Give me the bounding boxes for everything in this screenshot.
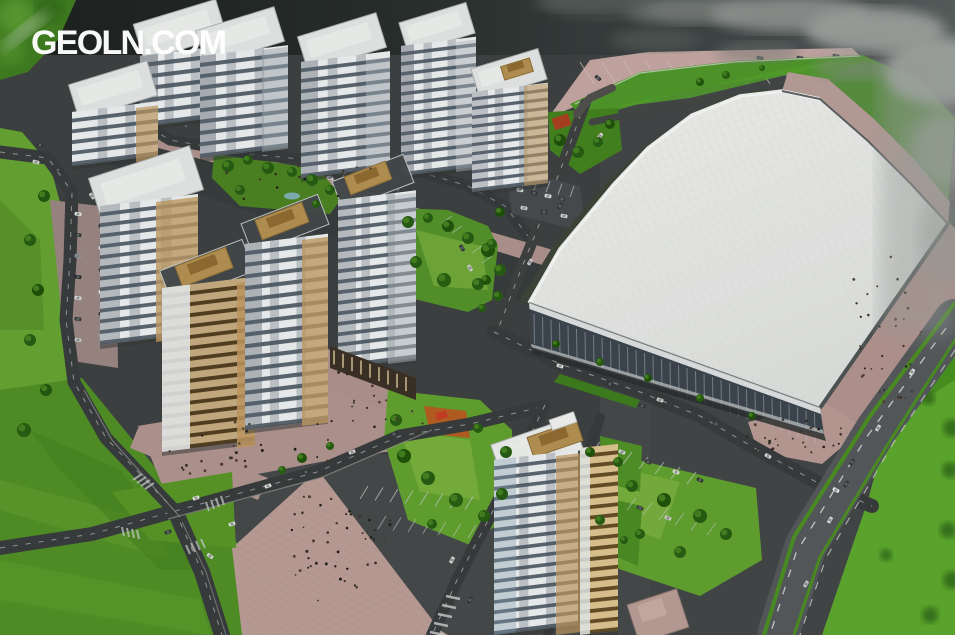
svg-text:GEOLN.COM: GEOLN.COM	[31, 24, 226, 62]
